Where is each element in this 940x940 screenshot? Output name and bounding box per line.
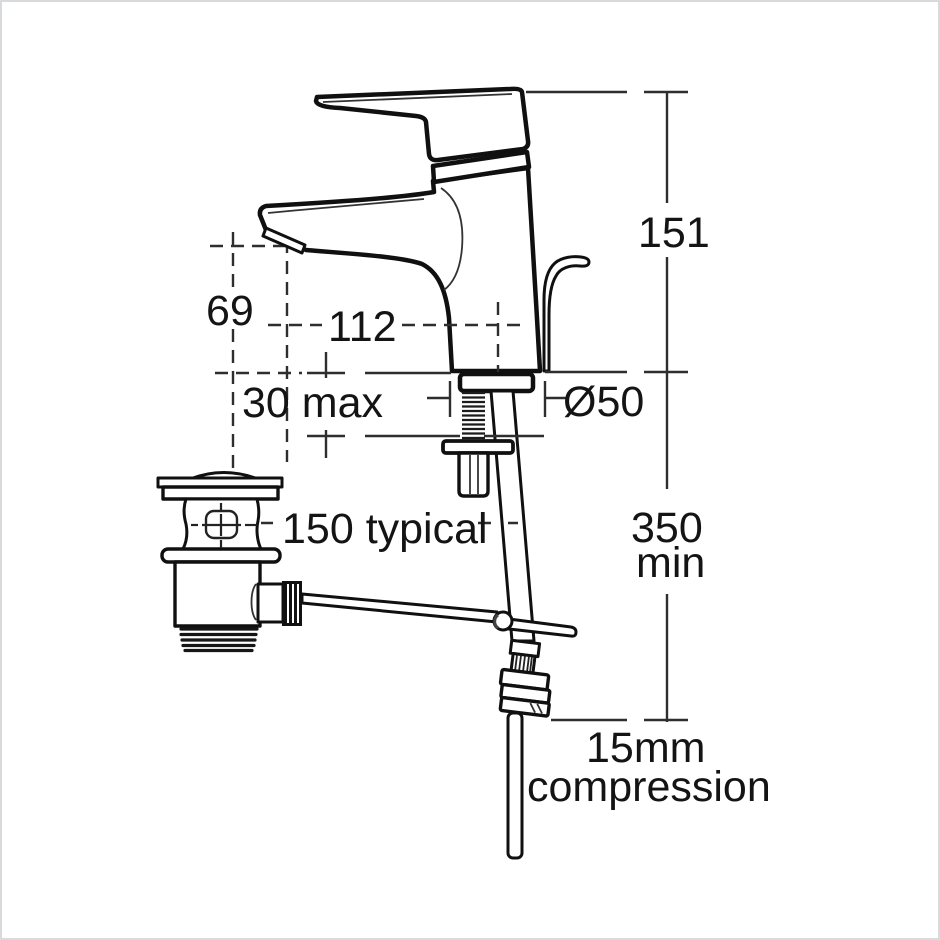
label-deck-thickness: 30 max <box>242 379 384 427</box>
technical-drawing: 151 69 112 30 max Ø50 150 typical 350 mi… <box>0 0 940 940</box>
construction-lines-under <box>210 232 302 468</box>
lever-handle <box>316 89 528 160</box>
label-spout-reach: 112 <box>328 303 397 351</box>
label-connection-type: compression <box>527 763 771 811</box>
drawing-canvas: 151 69 112 30 max Ø50 150 typical 350 mi… <box>0 0 940 940</box>
linkage-rod-left <box>302 594 497 622</box>
supply-pipe <box>508 713 522 858</box>
tap-body-and-spout <box>260 168 540 371</box>
compression-fitting <box>497 640 556 717</box>
side-outlet-stub <box>258 584 283 622</box>
label-clearance-unit: min <box>636 539 705 587</box>
waste-body <box>175 562 260 626</box>
flexible-tail <box>491 391 534 641</box>
threaded-shank <box>462 393 485 438</box>
base-plate <box>460 374 533 391</box>
waste-thread-lines <box>181 629 257 651</box>
backnut <box>459 453 488 496</box>
label-waste-offset: 150 typical <box>282 505 488 553</box>
label-overall-height: 151 <box>638 209 710 257</box>
washer-plate <box>443 441 513 453</box>
pop-up-rod-knob <box>544 257 589 371</box>
waste-linkage <box>302 594 576 636</box>
label-base-diameter: Ø50 <box>563 378 644 426</box>
label-outlet-height: 69 <box>206 287 254 335</box>
pop-up-waste <box>158 473 301 651</box>
top-flange <box>163 487 278 499</box>
lower-flange <box>162 549 280 562</box>
mixer-tap <box>260 89 589 391</box>
